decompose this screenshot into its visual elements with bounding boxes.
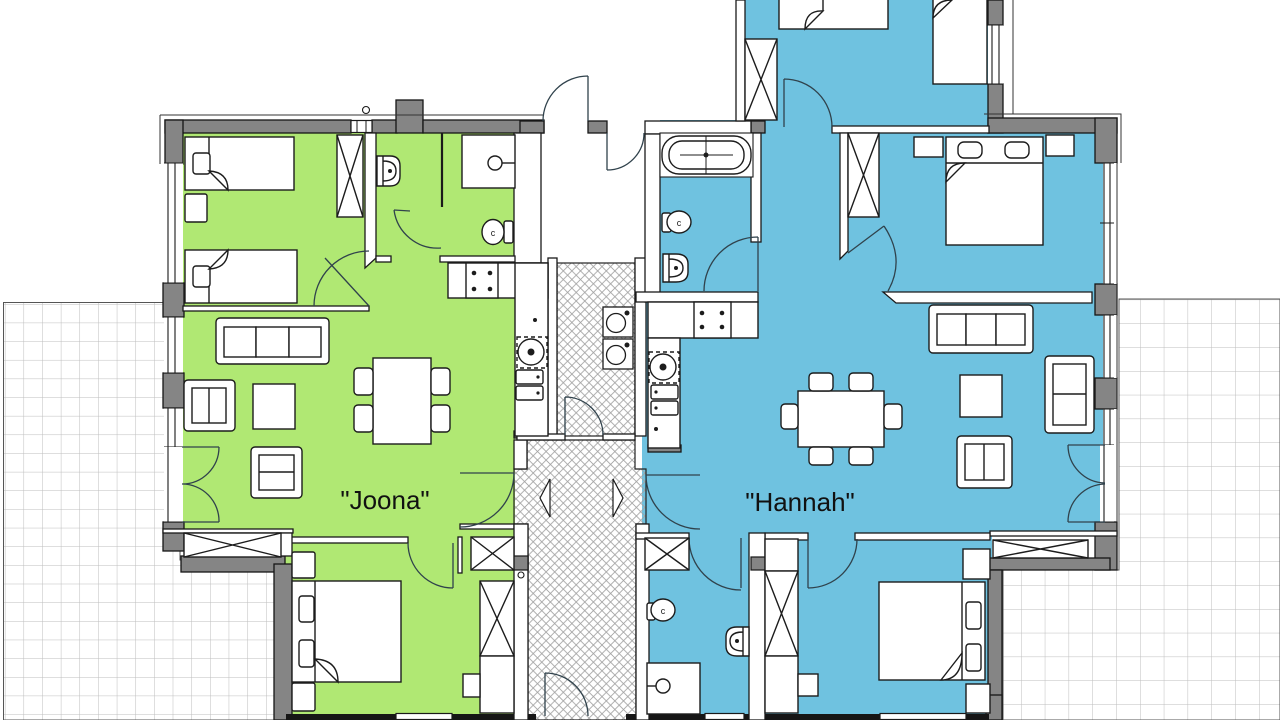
svg-text:"Hannah": "Hannah" bbox=[745, 487, 855, 517]
svg-text:"Joona": "Joona" bbox=[340, 485, 429, 515]
svg-text:c: c bbox=[661, 606, 666, 616]
svg-text:c: c bbox=[677, 218, 682, 228]
svg-text:c: c bbox=[491, 228, 496, 238]
